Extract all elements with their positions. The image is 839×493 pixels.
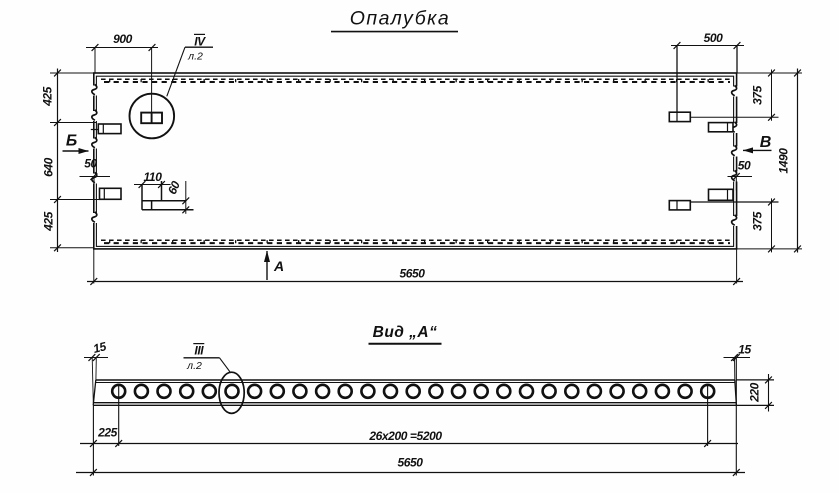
svg-text:Б: Б <box>66 133 77 150</box>
svg-text:425: 425 <box>42 211 56 232</box>
svg-text:900: 900 <box>113 32 133 46</box>
svg-text:5650: 5650 <box>399 267 425 281</box>
svg-text:Вид „А“: Вид „А“ <box>373 324 438 341</box>
svg-text:225: 225 <box>97 426 118 440</box>
svg-text:15: 15 <box>738 343 751 357</box>
svg-text:425: 425 <box>41 86 55 107</box>
svg-text:В: В <box>760 134 772 151</box>
svg-text:110: 110 <box>144 170 163 184</box>
svg-text:500: 500 <box>704 31 724 45</box>
svg-text:л.2: л.2 <box>186 360 202 372</box>
svg-text:л.2: л.2 <box>187 51 203 63</box>
svg-text:375: 375 <box>751 211 765 231</box>
svg-text:IV: IV <box>194 35 206 49</box>
svg-text:220: 220 <box>748 382 762 403</box>
svg-text:1490: 1490 <box>777 148 791 174</box>
svg-text:5650: 5650 <box>397 456 423 470</box>
svg-text:А: А <box>273 258 284 274</box>
svg-text:26х200 =5200: 26х200 =5200 <box>368 429 442 443</box>
svg-text:Опалубка: Опалубка <box>350 8 451 30</box>
svg-text:50: 50 <box>738 159 751 173</box>
svg-text:50: 50 <box>84 157 97 171</box>
svg-text:375: 375 <box>751 85 765 105</box>
svg-text:640: 640 <box>42 157 56 177</box>
svg-text:III: III <box>194 344 204 358</box>
